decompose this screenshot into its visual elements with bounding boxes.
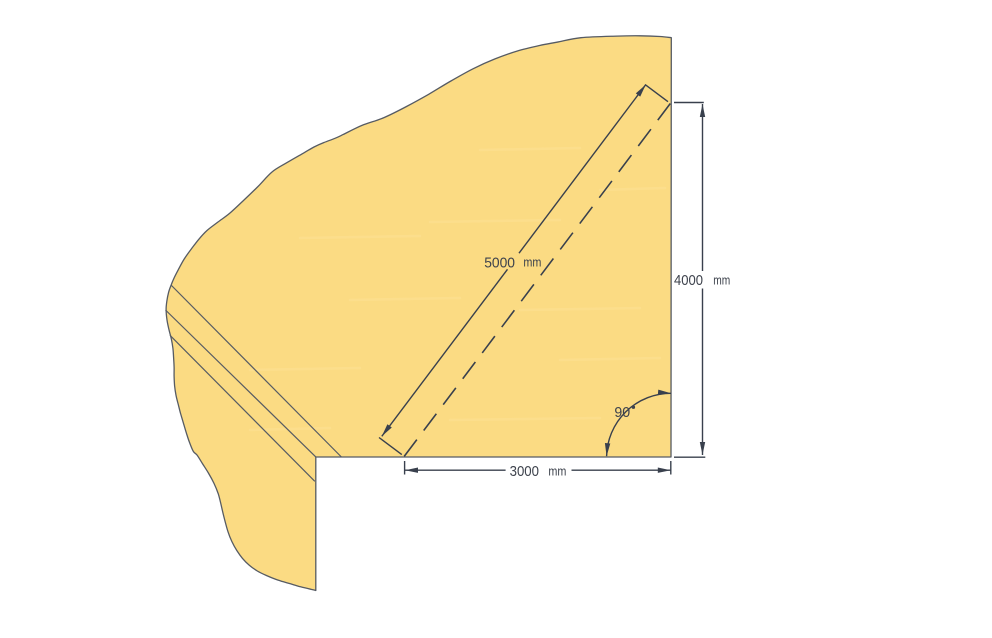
svg-text:mm: mm [523, 256, 541, 270]
svg-text:mm: mm [713, 273, 730, 287]
svg-text:5000: 5000 [484, 255, 515, 271]
svg-text:90: 90 [614, 405, 630, 421]
svg-text:4000: 4000 [674, 273, 703, 289]
svg-text:3000: 3000 [510, 464, 539, 480]
svg-text:mm: mm [548, 465, 566, 479]
